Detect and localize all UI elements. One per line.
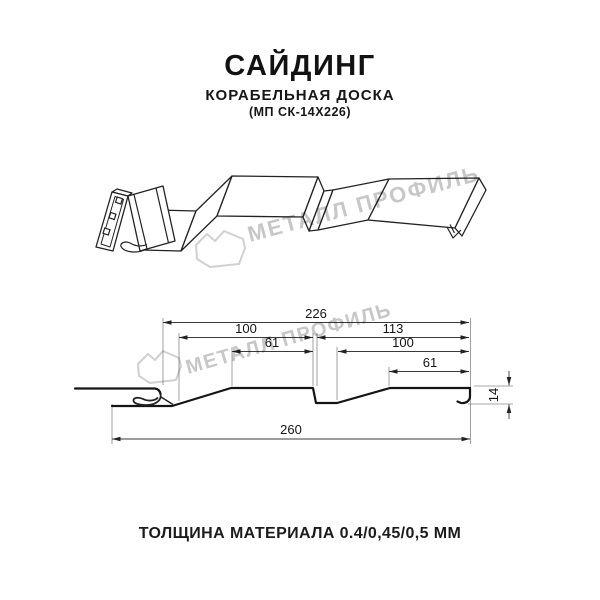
watermark-lower: МЕТАЛЛ ПРОФИЛЬ	[138, 299, 394, 383]
technical-drawing: МЕТАЛЛ ПРОФИЛЬ	[0, 0, 600, 600]
dim-label-260: 260	[280, 422, 302, 437]
lock-hem-section-curl	[133, 394, 160, 405]
dim-label-100-right: 100	[392, 335, 414, 350]
nail-strip-section-line	[75, 389, 161, 395]
nail-hole	[109, 213, 116, 220]
nail-hole	[103, 228, 110, 235]
metal-profil-logo-icon	[138, 351, 181, 383]
dim-label-61-right: 61	[423, 355, 437, 370]
profile-outline	[112, 388, 470, 406]
dim-label-113: 113	[383, 321, 404, 336]
lock-engage-line	[161, 397, 173, 405]
nail-hole	[116, 197, 123, 204]
product-diagram-page: САЙДИНГ КОРАБЕЛЬНАЯ ДОСКА (МП СК-14Х226)	[0, 0, 600, 600]
dim-label-100-left: 100	[235, 321, 257, 336]
metal-profil-logo-icon	[196, 231, 245, 267]
thickness-note: ТОЛЩИНА МАТЕРИАЛА 0.4/0,45/0,5 ММ	[0, 525, 600, 543]
dim-label-14: 14	[486, 388, 501, 402]
watermark-brand-text: МЕТАЛЛ ПРОФИЛЬ	[183, 299, 394, 379]
